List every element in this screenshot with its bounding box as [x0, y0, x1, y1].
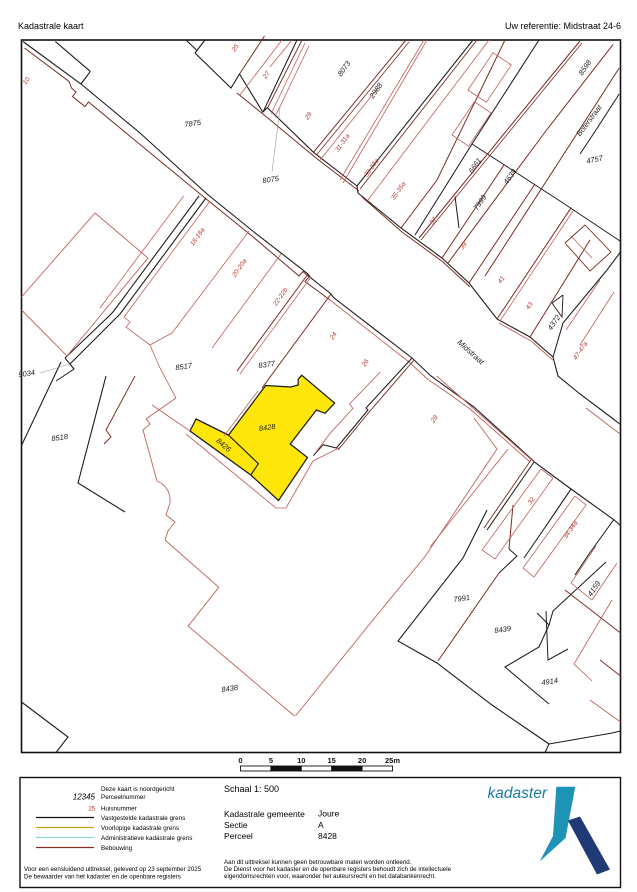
svg-text:9034: 9034 [18, 368, 36, 379]
svg-text:10: 10 [297, 756, 305, 765]
svg-text:33-33a: 33-33a [363, 158, 381, 179]
svg-text:Sectie: Sectie [224, 820, 248, 830]
svg-text:34-34a: 34-34a [562, 520, 580, 541]
svg-text:Huisnummer: Huisnummer [101, 806, 137, 813]
svg-text:De Dienst voor het kadaster en: De Dienst voor het kadaster en de openba… [224, 866, 452, 873]
svg-text:4639: 4639 [501, 166, 518, 186]
svg-text:Joure: Joure [318, 809, 340, 819]
svg-text:Schaal 1: 500: Schaal 1: 500 [224, 784, 279, 794]
svg-text:41: 41 [497, 275, 507, 285]
svg-text:15: 15 [328, 756, 336, 765]
svg-text:4372: 4372 [545, 312, 562, 332]
svg-text:8075: 8075 [262, 174, 281, 185]
svg-text:22-22b: 22-22b [272, 287, 290, 309]
svg-text:Vastgestelde kadastrale grens: Vastgestelde kadastrale grens [101, 815, 185, 822]
svg-text:27: 27 [261, 70, 272, 81]
svg-text:A: A [318, 820, 324, 830]
svg-text:25m: 25m [385, 756, 400, 765]
svg-text:28: 28 [429, 414, 440, 425]
svg-text:24: 24 [328, 331, 339, 342]
svg-text:4757: 4757 [585, 153, 604, 165]
svg-text:De bewaarder van het kadaster: De bewaarder van het kadaster en de open… [24, 874, 181, 881]
svg-text:8438: 8438 [221, 683, 240, 694]
svg-text:Boterstraat: Boterstraat [574, 102, 604, 137]
svg-text:kadaster: kadaster [488, 785, 548, 802]
svg-text:31-31a: 31-31a [334, 133, 352, 154]
svg-text:43: 43 [525, 301, 535, 311]
svg-text:25: 25 [230, 43, 241, 54]
svg-text:32: 32 [527, 496, 537, 506]
svg-text:12345: 12345 [73, 793, 96, 802]
svg-text:8439: 8439 [494, 624, 513, 635]
svg-text:20-20a: 20-20a [231, 258, 249, 280]
svg-text:0: 0 [238, 756, 242, 765]
svg-text:4914: 4914 [541, 676, 559, 687]
svg-text:Midstraat: Midstraat [455, 338, 486, 367]
svg-text:Aan dit uittreksel kunnen geen: Aan dit uittreksel kunnen geen betrouwba… [224, 859, 412, 866]
svg-text:8377: 8377 [258, 359, 277, 370]
svg-text:8073: 8073 [335, 58, 352, 78]
svg-text:29: 29 [303, 111, 314, 122]
svg-text:47-47a: 47-47a [572, 341, 590, 362]
svg-text:Perceel: Perceel [224, 831, 253, 841]
svg-text:10: 10 [22, 76, 32, 86]
svg-text:7875: 7875 [184, 118, 203, 129]
svg-text:Kadastrale gemeente: Kadastrale gemeente [224, 809, 305, 819]
svg-text:Administratieve kadastrale gre: Administratieve kadastrale grens [101, 835, 192, 842]
svg-text:7991: 7991 [453, 593, 471, 604]
svg-text:7999: 7999 [471, 192, 488, 212]
svg-text:18-18a: 18-18a [189, 227, 207, 248]
svg-text:39: 39 [459, 241, 469, 251]
svg-text:Bebouwing: Bebouwing [101, 845, 133, 852]
svg-text:26: 26 [360, 358, 371, 369]
svg-text:6661: 6661 [466, 156, 483, 175]
svg-text:8598: 8598 [576, 57, 593, 77]
svg-text:Voor een eensluidend uittrekse: Voor een eensluidend uittreksel, gelever… [24, 866, 202, 873]
svg-text:eigendomsrechten voor, waarond: eigendomsrechten voor, waaronder het aut… [224, 873, 436, 880]
svg-text:35-35a: 35-35a [390, 181, 408, 202]
svg-text:Perceelnummer: Perceelnummer [101, 794, 145, 801]
svg-text:20: 20 [358, 756, 366, 765]
svg-text:Deze kaart is noordgericht: Deze kaart is noordgericht [101, 786, 175, 793]
svg-text:25: 25 [88, 807, 95, 813]
svg-text:8517: 8517 [175, 361, 194, 372]
svg-text:8428: 8428 [318, 831, 337, 841]
svg-text:Voorlopige kadastrale grens: Voorlopige kadastrale grens [101, 825, 179, 832]
svg-text:5: 5 [269, 756, 273, 765]
svg-text:8518: 8518 [51, 432, 70, 443]
